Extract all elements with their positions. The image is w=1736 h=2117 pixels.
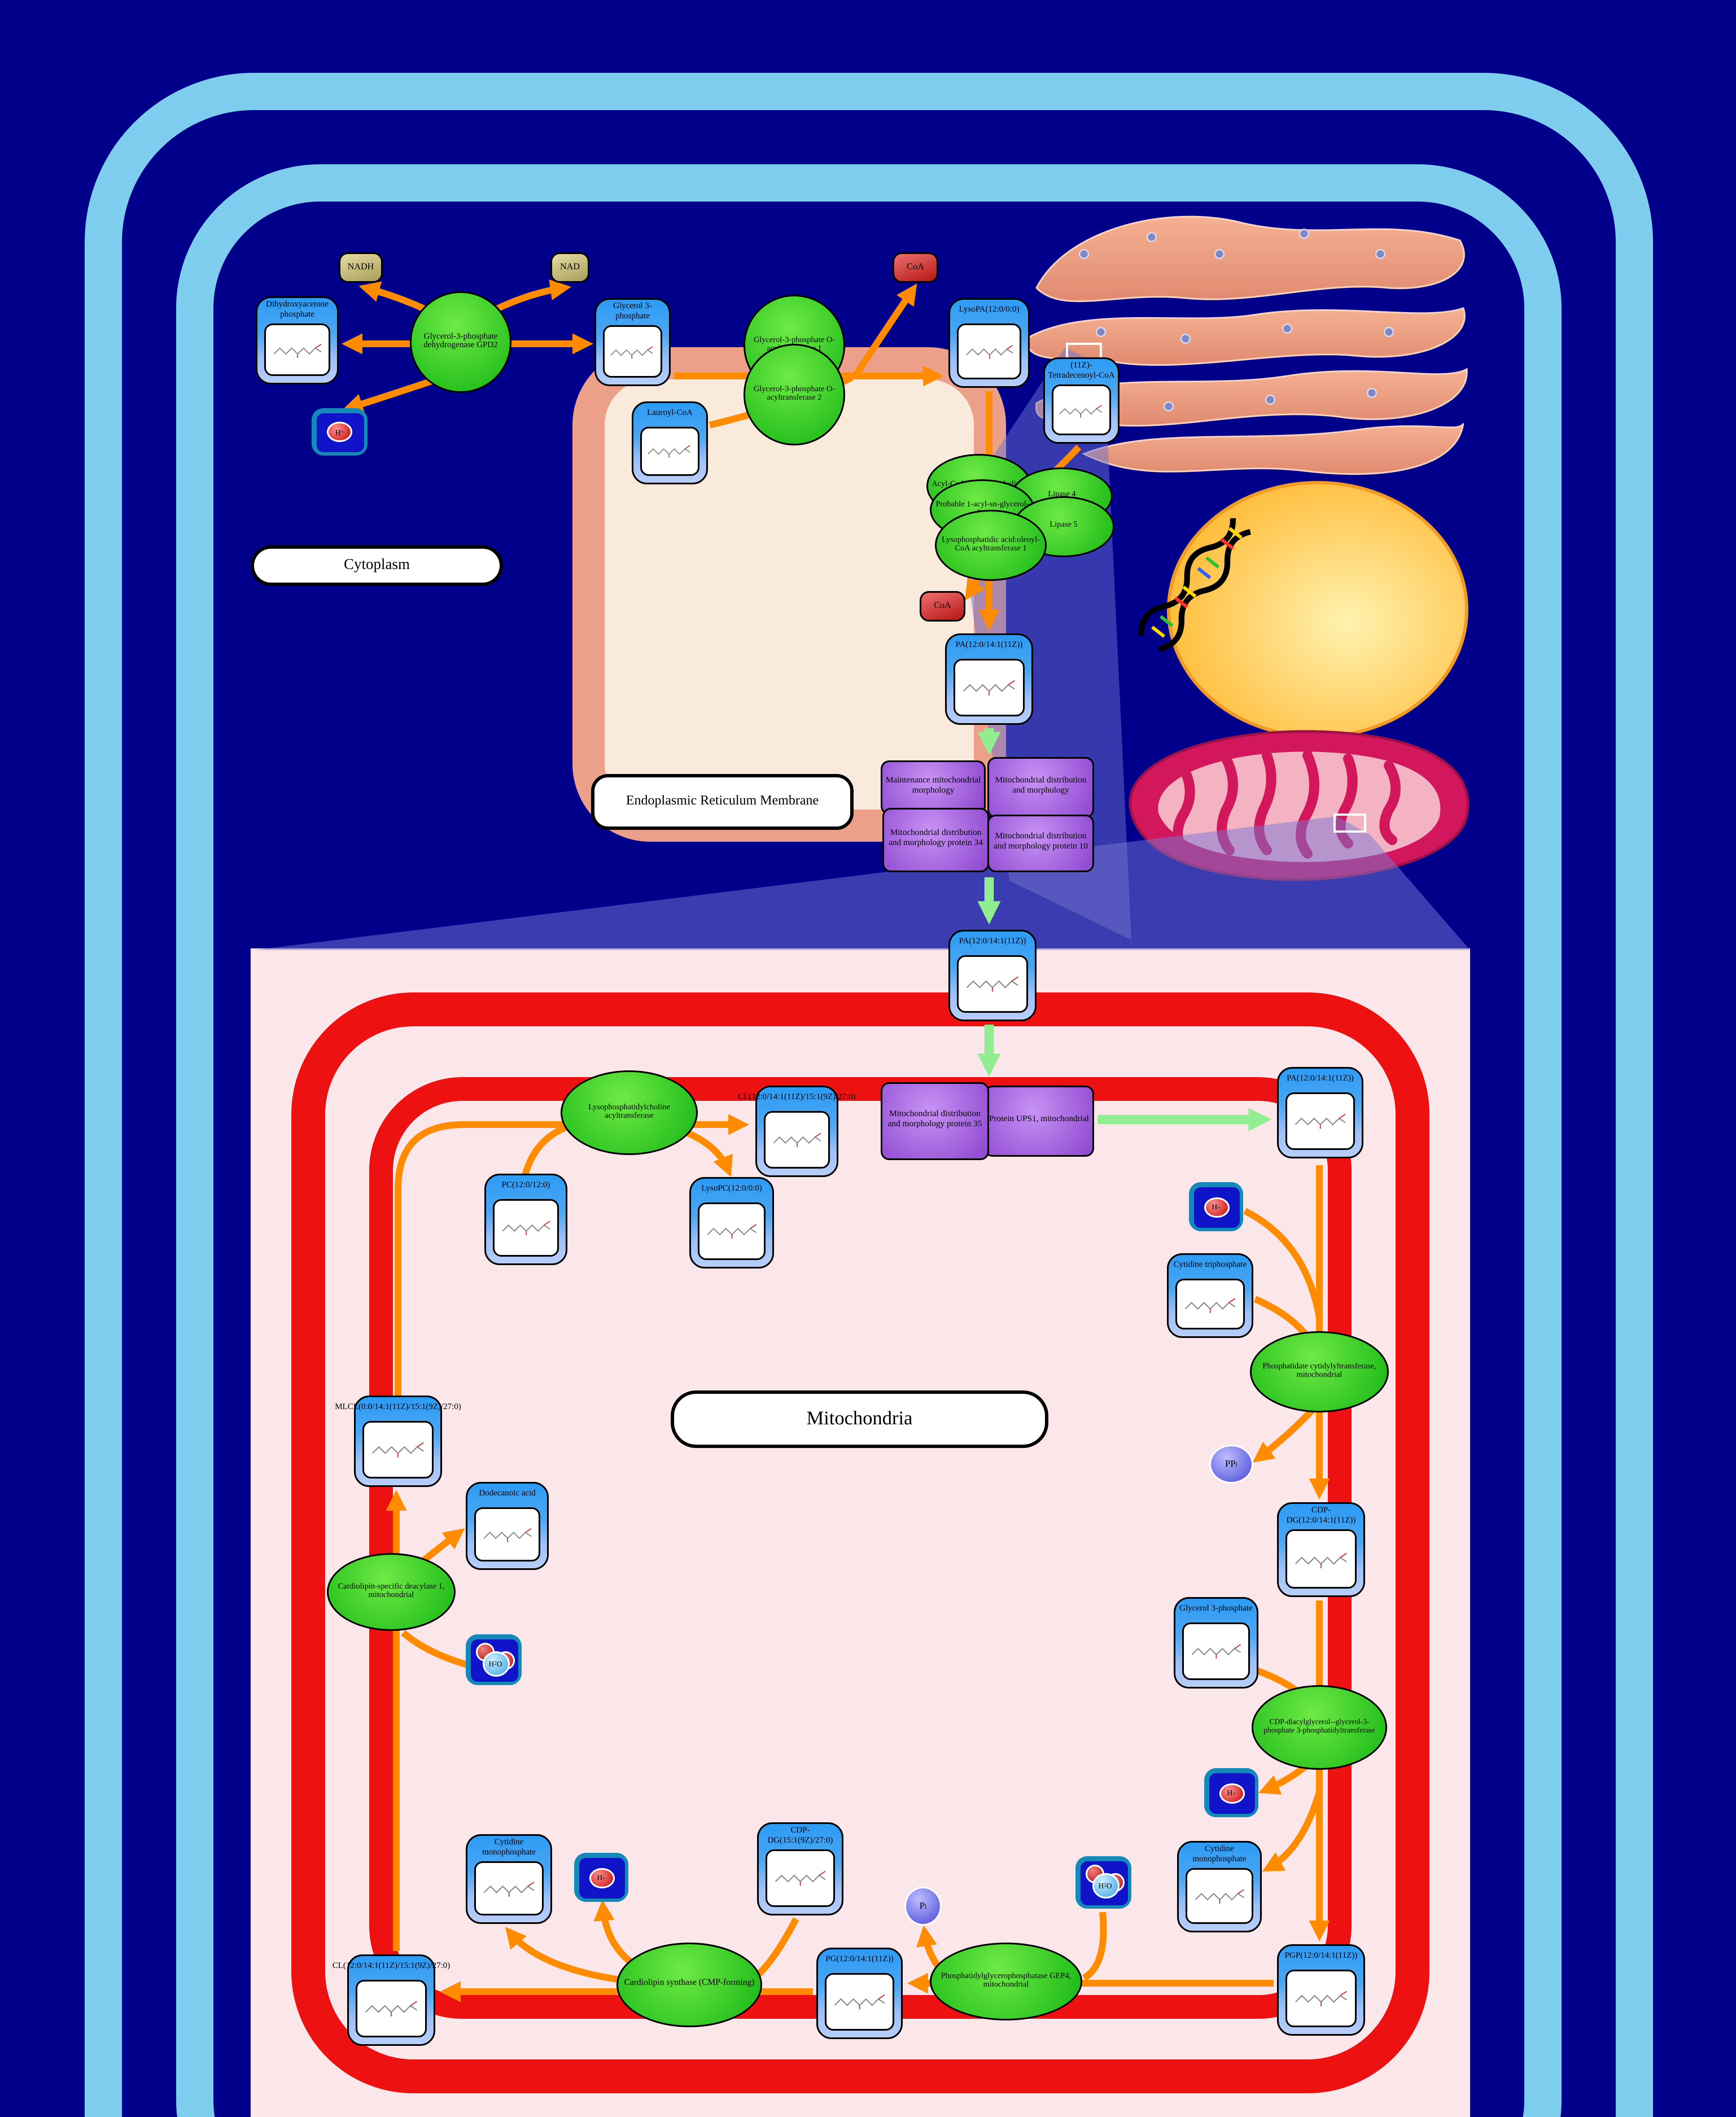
molecule-structure <box>954 659 1025 716</box>
cofactor-coa-top[interactable]: CoA <box>893 252 938 283</box>
metabolite-node-lysopa[interactable]: LysoPA(12:0/0:0) <box>948 298 1030 388</box>
molecule-structure <box>1285 1529 1357 1589</box>
enzyme-label: CDP-diacylglycerol--glycerol-3-phosphate… <box>1257 1719 1382 1736</box>
metabolite-node-tetradecenoyl-coa[interactable]: (11Z)-Tetradecenoyl-CoA <box>1043 357 1120 444</box>
enzyme-label: Glycerol-3-phosphate dehydrogenase GPD2 <box>415 333 506 351</box>
metabolite-label: (11Z)-Tetradecenoyl-CoA <box>1045 359 1118 383</box>
water-molecule-icon: H2O <box>470 1639 517 1681</box>
molecule-structure <box>764 1111 830 1169</box>
pyrophosphate-ion[interactable]: PPi <box>1209 1445 1253 1484</box>
molecule-structure <box>1285 1970 1357 2027</box>
enzyme-gep4[interactable]: Phosphatidylglycerophosphatase GEP4, mit… <box>930 1943 1082 2020</box>
metabolite-node-cmp-right[interactable]: Cytidine monophosphate <box>1177 1841 1262 1932</box>
enzyme-gpat2[interactable]: Glycerol-3-phosphate O-acyltransferase 2 <box>744 344 845 445</box>
enzyme-cardiolipin-synthase[interactable]: Cardiolipin synthase (CMP-forming) <box>616 1943 762 2027</box>
molecule-structure <box>1052 384 1111 435</box>
molecule-structure <box>362 1421 434 1479</box>
molecule-structure <box>698 1202 766 1260</box>
metabolite-label: LysoPC(12:0/0:0) <box>644 1179 820 1201</box>
hydrogen-ion-matrix-2[interactable]: H+ <box>1204 1768 1258 1817</box>
enzyme-phosphatidate-cytidylyltransferase[interactable]: Phosphatidate cytidylyltransferase, mito… <box>1250 1331 1389 1412</box>
metabolite-label: Cytidine triphosphate <box>1169 1255 1252 1277</box>
molecule-structure <box>957 955 1028 1013</box>
molecule-structure <box>474 1507 540 1561</box>
metabolite-label: MLCL(0:0/14:1(11Z)/15:1(9Z)/27:0) <box>308 1397 488 1419</box>
metabolite-label: CDP-DG(12:0/14:1(11Z)) <box>1279 1504 1363 1528</box>
enzyme-label: Phosphatidylglycerophosphatase GEP4, mit… <box>935 1973 1077 1990</box>
molecule-structure <box>493 1199 559 1257</box>
hydrogen-ion-matrix-1[interactable]: H+ <box>1189 1182 1243 1231</box>
mitochondria-label: Mitochondria <box>671 1390 1048 1448</box>
water-icon-left[interactable]: H2O <box>466 1634 522 1685</box>
hydrogen-ion-matrix-3[interactable]: H+ <box>574 1853 628 1902</box>
enzyme-label: Lysophosphatidylcholine acyltransferase <box>566 1104 693 1122</box>
metabolite-label: PGP(12:0/14:1(11Z)) <box>1231 1946 1411 1968</box>
enzyme-label: Glycerol-3-phosphate O-acyltransferase 2 <box>749 386 840 404</box>
metabolite-node-cdp-dg-1[interactable]: CDP-DG(12:0/14:1(11Z)) <box>1277 1502 1365 1597</box>
metabolite-label: CL(12:0/14:1(11Z)/15:1(9Z)/27:0) <box>301 1956 481 1978</box>
cofactor-nad[interactable]: NAD <box>550 252 589 283</box>
metabolite-node-pc[interactable]: PC(12:0/12:0) <box>484 1174 567 1265</box>
metabolite-label: Cytidine monophosphate <box>1179 1843 1260 1866</box>
molecule-structure <box>1175 1279 1245 1329</box>
metabolite-node-pg[interactable]: PG(12:0/14:1(11Z)) <box>816 1948 903 2039</box>
pathway-diagram: Maintenance mitochondrial morphology Mit… <box>0 0 1736 2117</box>
enzyme-label: Cardiolipin-specific deacylase 1, mitoch… <box>332 1583 451 1601</box>
enzyme-label: Cardiolipin synthase (CMP-forming) <box>624 1980 755 1990</box>
cofactor-label: NADH <box>348 263 374 273</box>
metabolite-node-mlcl[interactable]: MLCL(0:0/14:1(11Z)/15:1(9Z)/27:0) <box>354 1396 442 1487</box>
h-plus-icon: H+ <box>1219 1783 1244 1803</box>
molecule-structure <box>1182 1622 1250 1680</box>
cofactor-label: CoA <box>907 263 924 273</box>
molecule-structure <box>640 427 699 476</box>
metabolite-label: Glycerol 3-phosphate <box>1175 1599 1257 1621</box>
metabolite-node-g3p-mito[interactable]: Glycerol 3-phosphate <box>1174 1597 1258 1689</box>
metabolite-node-pa-intermembrane[interactable]: PA(12:0/14:1(11Z)) <box>948 930 1037 1021</box>
metabolite-label: PG(12:0/14:1(11Z)) <box>771 1949 948 1971</box>
metabolite-label: PA(12:0/14:1(11Z)) <box>1231 1069 1409 1091</box>
molecule-structure <box>825 1973 894 2031</box>
metabolite-node-dodecanoic-acid[interactable]: Dodecanoic acid <box>466 1482 549 1570</box>
h-plus-icon: H+ <box>589 1867 614 1888</box>
metabolite-label: Cytidine monophosphate <box>467 1836 550 1860</box>
enzyme-lpaat1[interactable]: Lysophosphatidic acid:oleoyl-CoA acyltra… <box>935 510 1047 581</box>
water-icon-right[interactable]: H2O <box>1075 1856 1131 1909</box>
enzyme-label: Phosphatidate cytidylyltransferase, mito… <box>1255 1363 1384 1381</box>
metabolite-label: LysoPA(12:0/0:0) <box>903 300 1075 322</box>
metabolite-label: PA(12:0/14:1(11Z)) <box>899 635 1079 657</box>
enzyme-label: Lipase 5 <box>1050 522 1078 531</box>
cofactor-nadh[interactable]: NADH <box>339 252 383 283</box>
water-molecule-icon: H2O <box>1080 1860 1127 1904</box>
metabolite-node-cdp-dg-2[interactable]: CDP-DG(15:1(9Z)/27:0) <box>757 1822 843 1915</box>
molecule-structure <box>356 1980 427 2037</box>
metabolite-node-cmp-left[interactable]: Cytidine monophosphate <box>466 1834 552 1924</box>
metabolite-label: PA(12:0/14:1(11Z)) <box>903 931 1082 953</box>
metabolite-node-pa-er[interactable]: PA(12:0/14:1(11Z)) <box>945 633 1033 725</box>
molecule-structure <box>264 323 330 376</box>
molecule-structure <box>603 325 662 378</box>
molecule-structure <box>1186 1868 1253 1924</box>
metabolite-label: CDP-DG(15:1(9Z)/27:0) <box>759 1824 842 1848</box>
hydrogen-ion-cytoplasm[interactable]: H+ <box>312 408 368 456</box>
metabolite-label: Lauroyl-CoA <box>633 403 706 425</box>
metabolite-label: Glycerol 3-phosphate <box>596 300 669 323</box>
cofactor-coa-mid[interactable]: CoA <box>920 591 965 622</box>
metabolite-label: CL(12:0/14:1(11Z)/15:1(9Z)/27:0) <box>710 1087 884 1109</box>
molecule-structure <box>1285 1092 1355 1150</box>
molecule-structure <box>766 1849 835 1907</box>
metabolite-node-dhap[interactable]: Dihydroxyacetone phosphate <box>256 296 339 384</box>
phosphate-ion[interactable]: Pi <box>904 1887 942 1926</box>
molecule-structure <box>957 323 1021 379</box>
enzyme-pgp-synthase[interactable]: CDP-diacylglycerol--glycerol-3-phosphate… <box>1252 1685 1387 1770</box>
cytoplasm-label: Cytoplasm <box>251 545 503 586</box>
enzyme-label: Lysophosphatidic acid:oleoyl-CoA acyltra… <box>940 536 1042 554</box>
metabolite-node-ctp[interactable]: Cytidine triphosphate <box>1167 1253 1253 1338</box>
enzyme-cardiolipin-deacylase[interactable]: Cardiolipin-specific deacylase 1, mitoch… <box>327 1553 456 1631</box>
metabolite-node-pgp[interactable]: PGP(12:0/14:1(11Z)) <box>1277 1944 1365 2036</box>
er-membrane-label: Endoplasmic Reticulum Membrane <box>591 774 854 830</box>
h-plus-icon: H+ <box>1203 1197 1229 1217</box>
metabolite-node-cl[interactable]: CL(12:0/14:1(11Z)/15:1(9Z)/27:0) <box>347 1954 435 2046</box>
metabolite-node-lauroyl-coa[interactable]: Lauroyl-CoA <box>632 401 708 484</box>
cofactor-label: CoA <box>934 601 951 611</box>
metabolite-node-pa-inner-membrane[interactable]: PA(12:0/14:1(11Z)) <box>1277 1067 1363 1158</box>
cofactor-label: NAD <box>560 263 580 273</box>
metabolite-node-g3p[interactable]: Glycerol 3-phosphate <box>594 298 671 386</box>
metabolite-label: Dodecanoic acid <box>467 1484 547 1506</box>
enzyme-lpcat[interactable]: Lysophosphatidylcholine acyltransferase <box>561 1070 698 1155</box>
molecule-structure <box>474 1861 544 1915</box>
metabolite-label: PC(12:0/12:0) <box>439 1175 613 1197</box>
enzyme-gpd2[interactable]: Glycerol-3-phosphate dehydrogenase GPD2 <box>410 291 511 393</box>
metabolite-label: Dihydroxyacetone phosphate <box>257 298 337 322</box>
metabolite-node-cl-top[interactable]: CL(12:0/14:1(11Z)/15:1(9Z)/27:0) <box>755 1086 838 1177</box>
metabolite-node-lysopc[interactable]: LysoPC(12:0/0:0) <box>689 1177 774 1269</box>
h-plus-icon: H+ <box>327 422 352 442</box>
